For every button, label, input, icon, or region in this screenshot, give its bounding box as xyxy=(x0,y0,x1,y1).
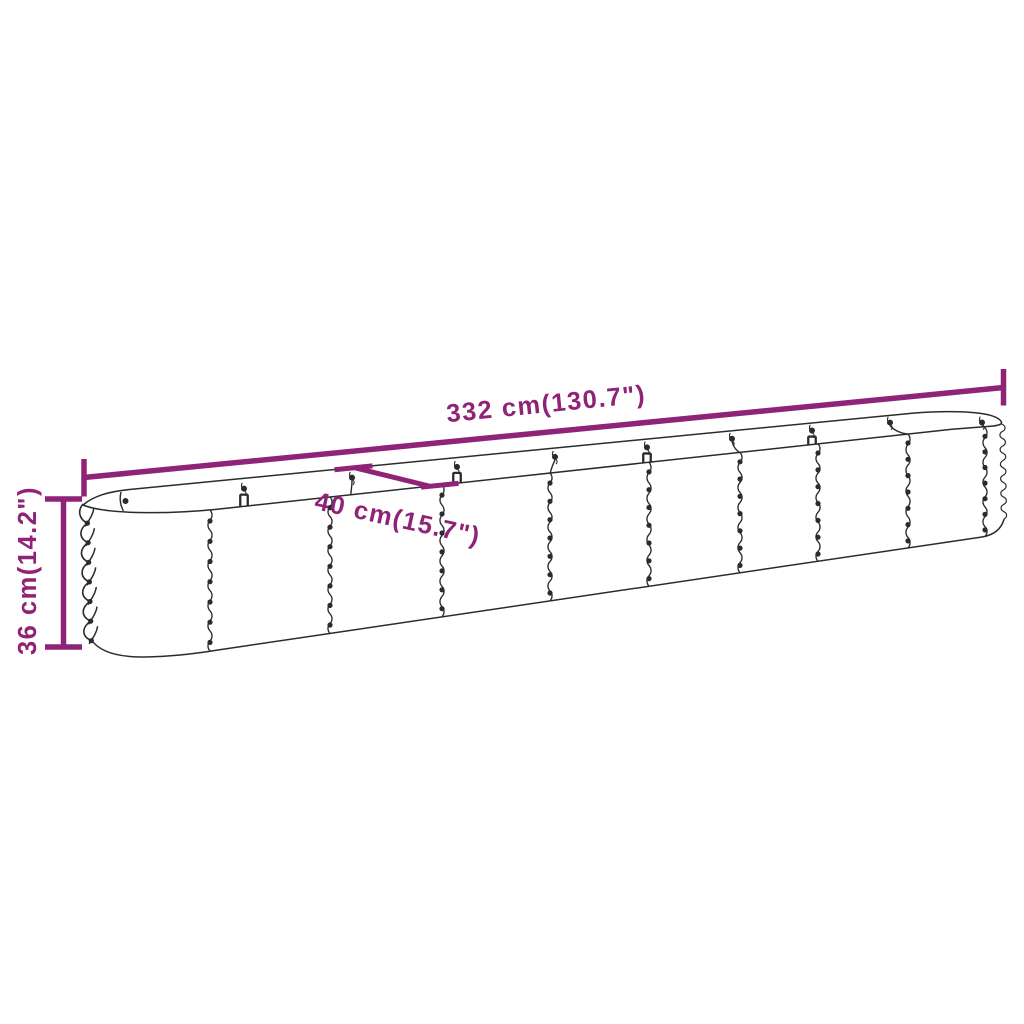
svg-text:36 cm(14.2"): 36 cm(14.2") xyxy=(14,486,42,655)
